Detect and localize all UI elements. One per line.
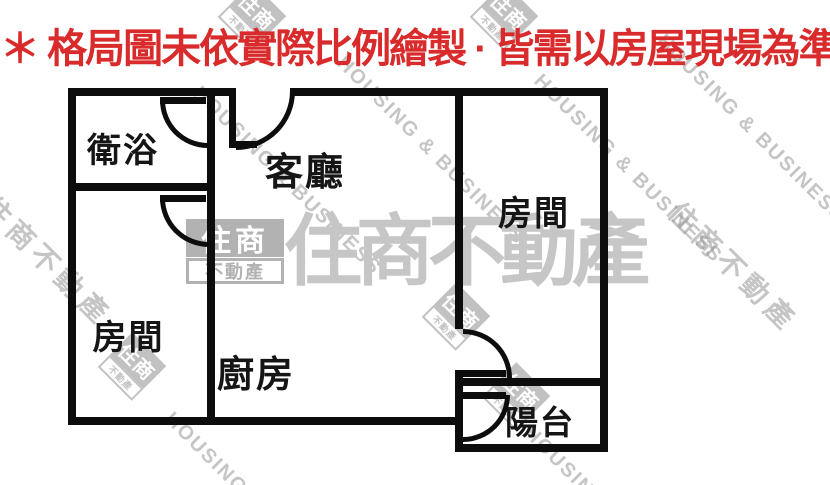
wall-balcony-bottom	[455, 444, 608, 452]
wall-outer-left	[68, 88, 76, 425]
floor-plan-image: ＊ 格局圖未依實際比例繪製 · 皆需以房屋現場為準 ＊ 住商不動產 住商不動產 …	[0, 0, 830, 485]
watermark-brand-text: 住商不動產	[284, 212, 644, 290]
disclaimer-text: ＊ 格局圖未依實際比例繪製 · 皆需以房屋現場為準 ＊	[0, 16, 830, 74]
wall-inner-right-upper	[455, 88, 463, 329]
wall-outer-right	[600, 88, 608, 452]
bedroom-right-door-arc	[463, 329, 512, 378]
bedroom-left-door-arc	[160, 198, 209, 247]
room-label-bedroom-right: 房間	[494, 186, 574, 235]
room-label-bedroom-left: 房間	[86, 310, 171, 359]
entrance-door-leaf	[229, 88, 236, 148]
room-label-living-room: 客廳	[246, 141, 364, 196]
wall-top-right-segment	[290, 88, 608, 96]
wall-bathroom-bottom	[68, 183, 215, 191]
room-label-kitchen: 廚房	[212, 344, 300, 398]
wall-room-balcony-divider	[455, 378, 608, 386]
room-label-bathroom: 衛浴	[78, 123, 168, 172]
center-logo-bottom: 不動產	[186, 258, 284, 284]
wall-bottom-main	[68, 417, 463, 425]
room-label-balcony: 陽台	[503, 396, 577, 444]
